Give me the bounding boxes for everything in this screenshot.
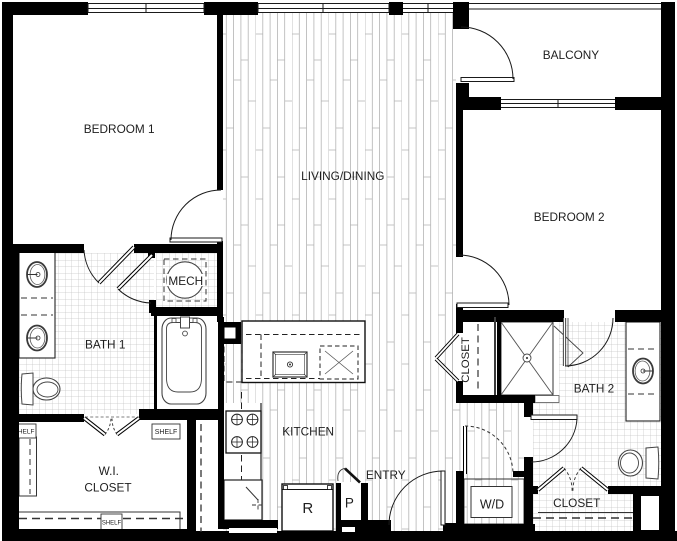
svg-text:SHELF: SHELF: [102, 521, 122, 527]
svg-text:CLOSET: CLOSET: [460, 337, 472, 383]
svg-text:P: P: [345, 496, 354, 511]
svg-text:ENTRY: ENTRY: [366, 468, 406, 482]
svg-text:MECH: MECH: [168, 274, 203, 288]
svg-text:BATH 2: BATH 2: [574, 382, 614, 396]
svg-text:BEDROOM 2: BEDROOM 2: [534, 210, 605, 224]
svg-text:BATH 1: BATH 1: [85, 337, 125, 351]
svg-text:W/D: W/D: [480, 498, 504, 512]
svg-text:CLOSET: CLOSET: [84, 481, 131, 495]
svg-text:KITCHEN: KITCHEN: [282, 424, 334, 438]
svg-text:R: R: [302, 500, 313, 517]
svg-text:LIVING/DINING: LIVING/DINING: [301, 169, 384, 183]
svg-text:BEDROOM 1: BEDROOM 1: [84, 122, 155, 136]
svg-text:SHELF: SHELF: [155, 429, 178, 436]
svg-text:CLOSET: CLOSET: [553, 496, 600, 510]
svg-text:W.I.: W.I.: [99, 464, 119, 478]
svg-text:BALCONY: BALCONY: [543, 48, 600, 62]
